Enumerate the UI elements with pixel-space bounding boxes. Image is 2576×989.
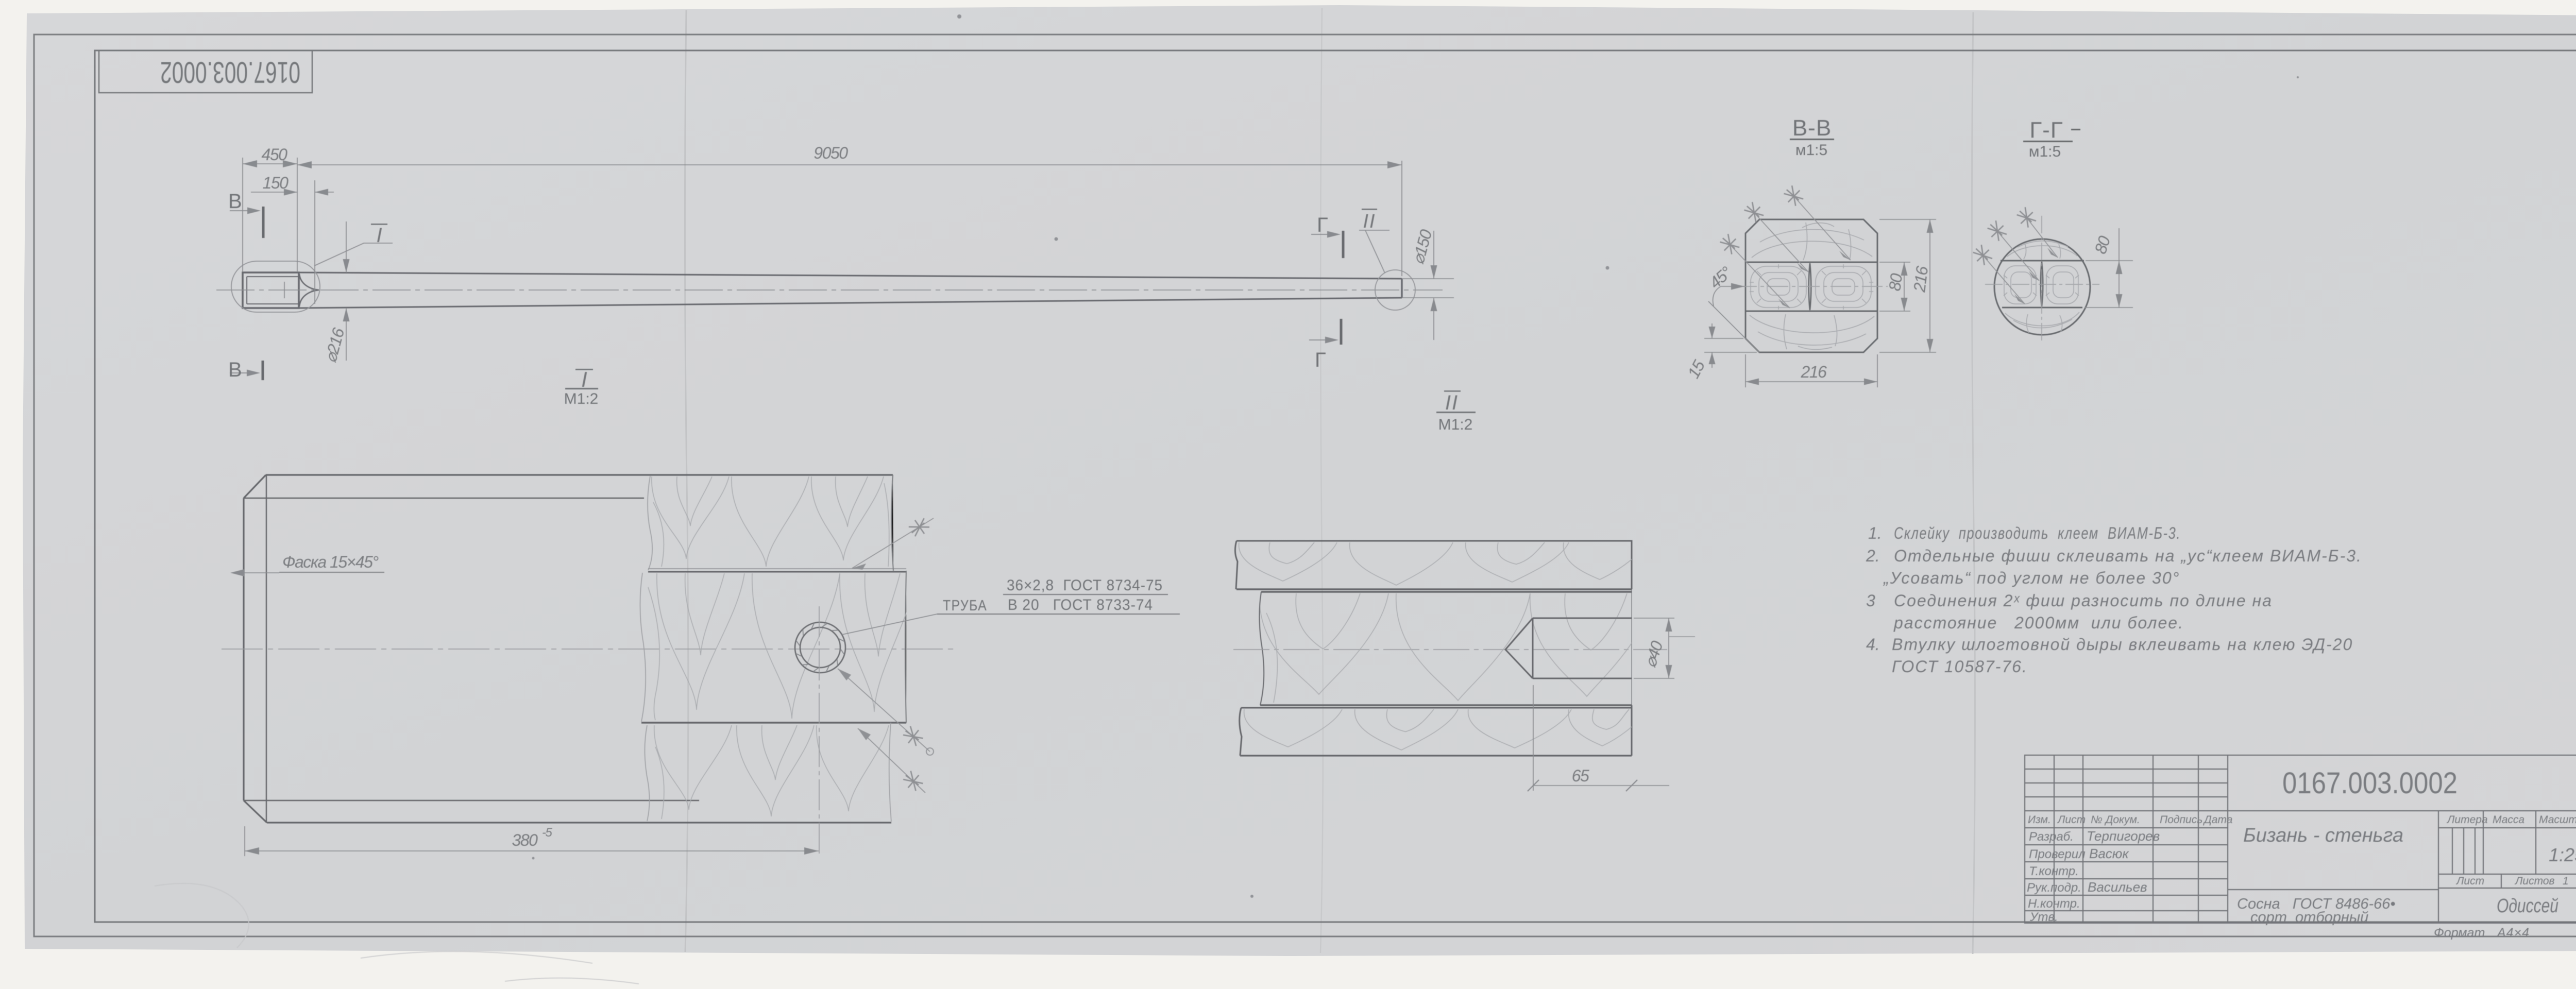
svg-text:ГОСТ 10587-76.: ГОСТ 10587-76. bbox=[1892, 657, 2028, 676]
svg-text:I: I bbox=[376, 224, 382, 247]
svg-text:Н.контр.: Н.контр. bbox=[2028, 897, 2080, 911]
svg-text:Втулку шлогтовной дыры вклеива: Втулку шлогтовной дыры вклеивать на клею… bbox=[1892, 635, 2353, 654]
svg-text:Бизань - стеньга: Бизань - стеньга bbox=[2243, 825, 2403, 846]
svg-text:150: 150 bbox=[263, 174, 289, 192]
svg-text:Подпись: Подпись bbox=[2160, 814, 2202, 826]
svg-text:Лист: Лист bbox=[2455, 875, 2484, 887]
svg-text:Одиссей: Одиссей bbox=[2497, 895, 2558, 917]
svg-text:Масса: Масса bbox=[2493, 814, 2524, 826]
svg-text:Васильев: Васильев bbox=[2088, 879, 2147, 895]
svg-text:80: 80 bbox=[1885, 272, 1906, 292]
svg-text:3: 3 bbox=[1866, 591, 1875, 610]
svg-text:Г: Г bbox=[1315, 349, 1326, 371]
svg-text:Листов: Листов bbox=[2514, 875, 2555, 887]
svg-text:0167.003.0002: 0167.003.0002 bbox=[160, 56, 300, 89]
svg-text:сорт отборный: сорт отборный bbox=[2250, 909, 2368, 926]
svg-text:Масштаб: Масштаб bbox=[2539, 814, 2576, 826]
svg-text:Лист: Лист bbox=[2057, 814, 2086, 826]
svg-text:№ Докум.: № Докум. bbox=[2091, 814, 2140, 826]
svg-text:Проверил: Проверил bbox=[2029, 847, 2086, 861]
svg-text:В-В: В-В bbox=[1792, 115, 1832, 141]
svg-text:Терпигорев: Терпигорев bbox=[2087, 828, 2160, 844]
svg-text:Изм.: Изм. bbox=[2028, 814, 2051, 826]
svg-text:I: I bbox=[581, 367, 587, 391]
svg-text:В: В bbox=[228, 190, 242, 213]
svg-text:м1:5: м1:5 bbox=[1795, 142, 1827, 159]
svg-text:Фаска 15×45°: Фаска 15×45° bbox=[282, 553, 379, 571]
svg-text:М1:2: М1:2 bbox=[564, 390, 599, 407]
svg-text:Рук.подр.: Рук.подр. bbox=[2027, 881, 2081, 895]
svg-text:II: II bbox=[1363, 211, 1376, 232]
svg-text:Дата: Дата bbox=[2203, 814, 2232, 826]
svg-text:1: 1 bbox=[2563, 875, 2569, 887]
svg-text:1.: 1. bbox=[1868, 524, 1882, 542]
svg-text:9050: 9050 bbox=[814, 144, 848, 162]
svg-text:В: В bbox=[228, 359, 242, 381]
svg-text:В 20 ГОСТ 8733-74: В 20 ГОСТ 8733-74 bbox=[1008, 596, 1153, 613]
svg-text:Т.контр.: Т.контр. bbox=[2029, 864, 2079, 878]
svg-text:Отдельные фиши склеивать на „у: Отдельные фиши склеивать на „ус“клеем ВИ… bbox=[1894, 547, 2362, 565]
svg-text:Разраб.: Разраб. bbox=[2029, 830, 2074, 844]
svg-text:М1:2: М1:2 bbox=[1438, 416, 1473, 433]
svg-text:Васюк: Васюк bbox=[2089, 846, 2129, 861]
svg-text:Г-Г: Г-Г bbox=[2029, 117, 2063, 143]
svg-text:Утв.: Утв. bbox=[2029, 910, 2058, 924]
svg-text:м1:5: м1:5 bbox=[2029, 143, 2061, 160]
svg-text:36×2,8 ГОСТ 8734-75: 36×2,8 ГОСТ 8734-75 bbox=[1007, 577, 1163, 594]
svg-text:216: 216 bbox=[1910, 265, 1931, 294]
svg-text:450: 450 bbox=[262, 145, 288, 164]
svg-text:ТРУБА: ТРУБА bbox=[943, 598, 987, 614]
svg-text:380: 380 bbox=[512, 831, 538, 849]
svg-text:65: 65 bbox=[1572, 766, 1589, 785]
svg-text:Литера: Литера bbox=[2446, 814, 2488, 826]
svg-text:4.: 4. bbox=[1866, 635, 1880, 654]
svg-text:Склейку производить клеем В: Склейку производить клеем ВИАМ-Б-3. bbox=[1894, 524, 2181, 542]
svg-text:216: 216 bbox=[1801, 363, 1827, 381]
svg-text:-5: -5 bbox=[542, 826, 552, 840]
svg-text:расстояние 2000мм или более: расстояние 2000мм или более. bbox=[1893, 613, 2184, 632]
svg-text:0167.003.0002: 0167.003.0002 bbox=[2282, 766, 2458, 800]
svg-text:Г: Г bbox=[1317, 214, 1328, 236]
svg-text:2.: 2. bbox=[1866, 547, 1880, 565]
svg-text:II: II bbox=[1445, 391, 1459, 414]
svg-text:А4×4: А4×4 bbox=[2496, 926, 2530, 940]
svg-text:Формат: Формат bbox=[2434, 926, 2485, 940]
svg-text:Соединения 2ˣ фиш разносить по: Соединения 2ˣ фиш разносить по длине на bbox=[1894, 591, 2273, 610]
svg-text:1:25: 1:25 bbox=[2549, 844, 2576, 865]
svg-text:„Усовать“ под углом не более 3: „Усовать“ под углом не более 30° bbox=[1883, 569, 2180, 587]
